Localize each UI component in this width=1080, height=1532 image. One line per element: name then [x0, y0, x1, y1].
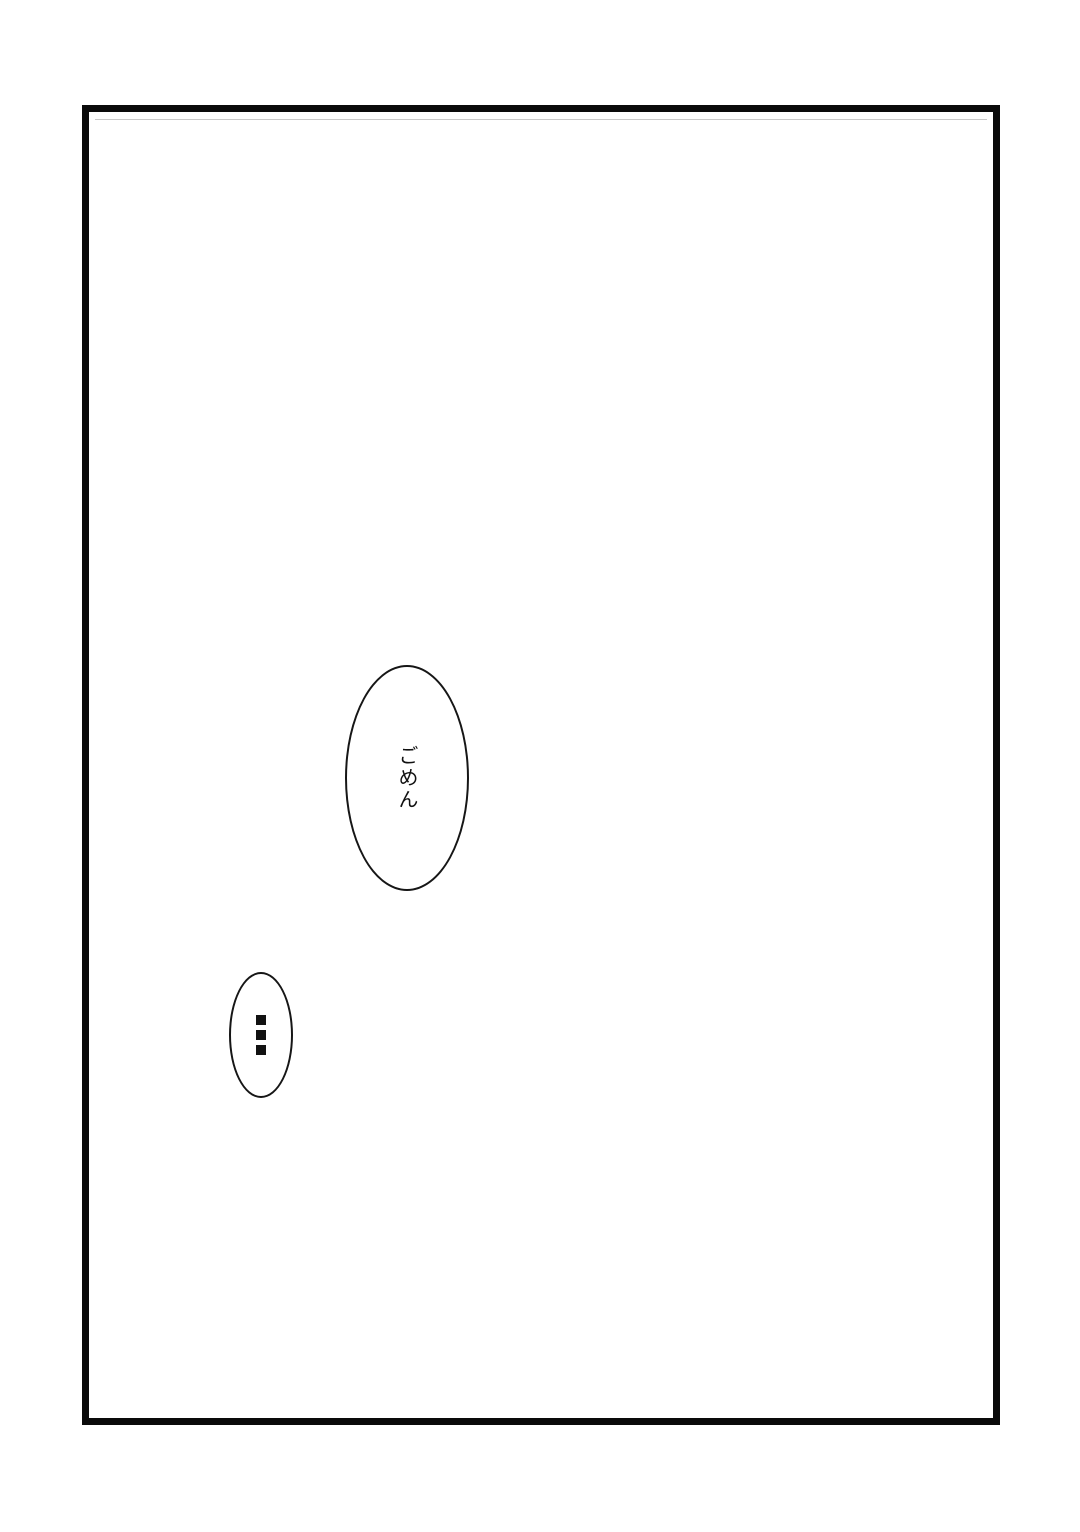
manga-page: ごめん …	[0, 0, 1080, 1532]
speech-bubble-large: ごめん	[345, 665, 469, 891]
panel-inner-scanline	[95, 119, 987, 120]
speech-bubble-small: …	[229, 972, 293, 1098]
ellipsis-dot	[256, 1045, 266, 1055]
ellipsis-dot	[256, 1015, 266, 1025]
speech-text-gomen: ごめん	[397, 745, 417, 811]
ellipsis-dot	[256, 1030, 266, 1040]
vertical-ellipsis-icon	[256, 1015, 266, 1055]
manga-panel-frame	[82, 105, 1000, 1425]
